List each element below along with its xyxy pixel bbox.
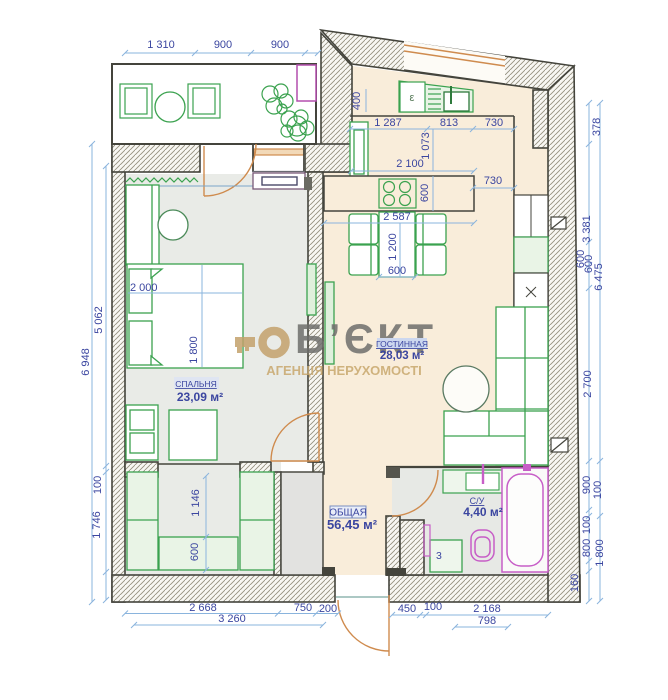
svg-text:23,09 м²: 23,09 м² — [177, 390, 223, 404]
svg-text:56,45 м²: 56,45 м² — [327, 517, 378, 532]
svg-text:6 475: 6 475 — [593, 263, 605, 291]
svg-text:750: 750 — [294, 602, 312, 614]
svg-text:100: 100 — [581, 516, 593, 534]
svg-text:4,40 м²: 4,40 м² — [463, 505, 503, 519]
svg-text:3 260: 3 260 — [218, 613, 246, 625]
svg-text:ε: ε — [410, 92, 415, 104]
svg-text:1 200: 1 200 — [387, 233, 399, 261]
svg-text:1 800: 1 800 — [594, 539, 606, 567]
svg-text:2 168: 2 168 — [473, 603, 501, 615]
svg-text:800: 800 — [581, 539, 593, 557]
svg-text:6 948: 6 948 — [80, 348, 92, 376]
svg-text:730: 730 — [484, 175, 502, 187]
svg-text:2 587: 2 587 — [383, 211, 411, 223]
svg-text:2 700: 2 700 — [582, 370, 594, 398]
svg-text:900: 900 — [214, 39, 232, 51]
svg-text:730: 730 — [485, 117, 503, 129]
svg-text:28,03 м²: 28,03 м² — [380, 350, 424, 362]
svg-text:100: 100 — [592, 481, 604, 499]
svg-text:600: 600 — [419, 184, 431, 202]
svg-text:2 668: 2 668 — [189, 602, 217, 614]
svg-text:1 073: 1 073 — [420, 132, 432, 160]
svg-text:900: 900 — [271, 39, 289, 51]
svg-text:1 287: 1 287 — [374, 117, 402, 129]
svg-text:2 100: 2 100 — [396, 158, 424, 170]
svg-text:1 146: 1 146 — [190, 489, 202, 517]
svg-text:3 381: 3 381 — [581, 215, 593, 243]
svg-text:3: 3 — [436, 550, 442, 562]
svg-text:СПАЛЬНЯ: СПАЛЬНЯ — [175, 379, 217, 389]
svg-text:1 800: 1 800 — [188, 336, 200, 364]
svg-text:798: 798 — [478, 615, 496, 627]
svg-text:АГЕНЦІЯ НЕРУХОМОСТІ: АГЕНЦІЯ НЕРУХОМОСТІ — [266, 363, 422, 378]
svg-text:813: 813 — [440, 117, 458, 129]
svg-text:100: 100 — [92, 476, 104, 494]
svg-text:600: 600 — [388, 265, 406, 277]
svg-text:100: 100 — [424, 601, 442, 613]
svg-text:450: 450 — [398, 603, 416, 615]
svg-text:1 310: 1 310 — [147, 39, 175, 51]
svg-text:200: 200 — [319, 603, 337, 615]
svg-text:1 746: 1 746 — [91, 511, 103, 539]
svg-text:ГОСТИННАЯ: ГОСТИННАЯ — [376, 339, 428, 349]
svg-text:2 000: 2 000 — [130, 282, 158, 294]
svg-text:160: 160 — [569, 574, 581, 592]
svg-text:5 062: 5 062 — [93, 306, 105, 334]
svg-text:600: 600 — [189, 543, 201, 561]
svg-text:400: 400 — [351, 92, 363, 110]
svg-text:378: 378 — [591, 118, 603, 136]
